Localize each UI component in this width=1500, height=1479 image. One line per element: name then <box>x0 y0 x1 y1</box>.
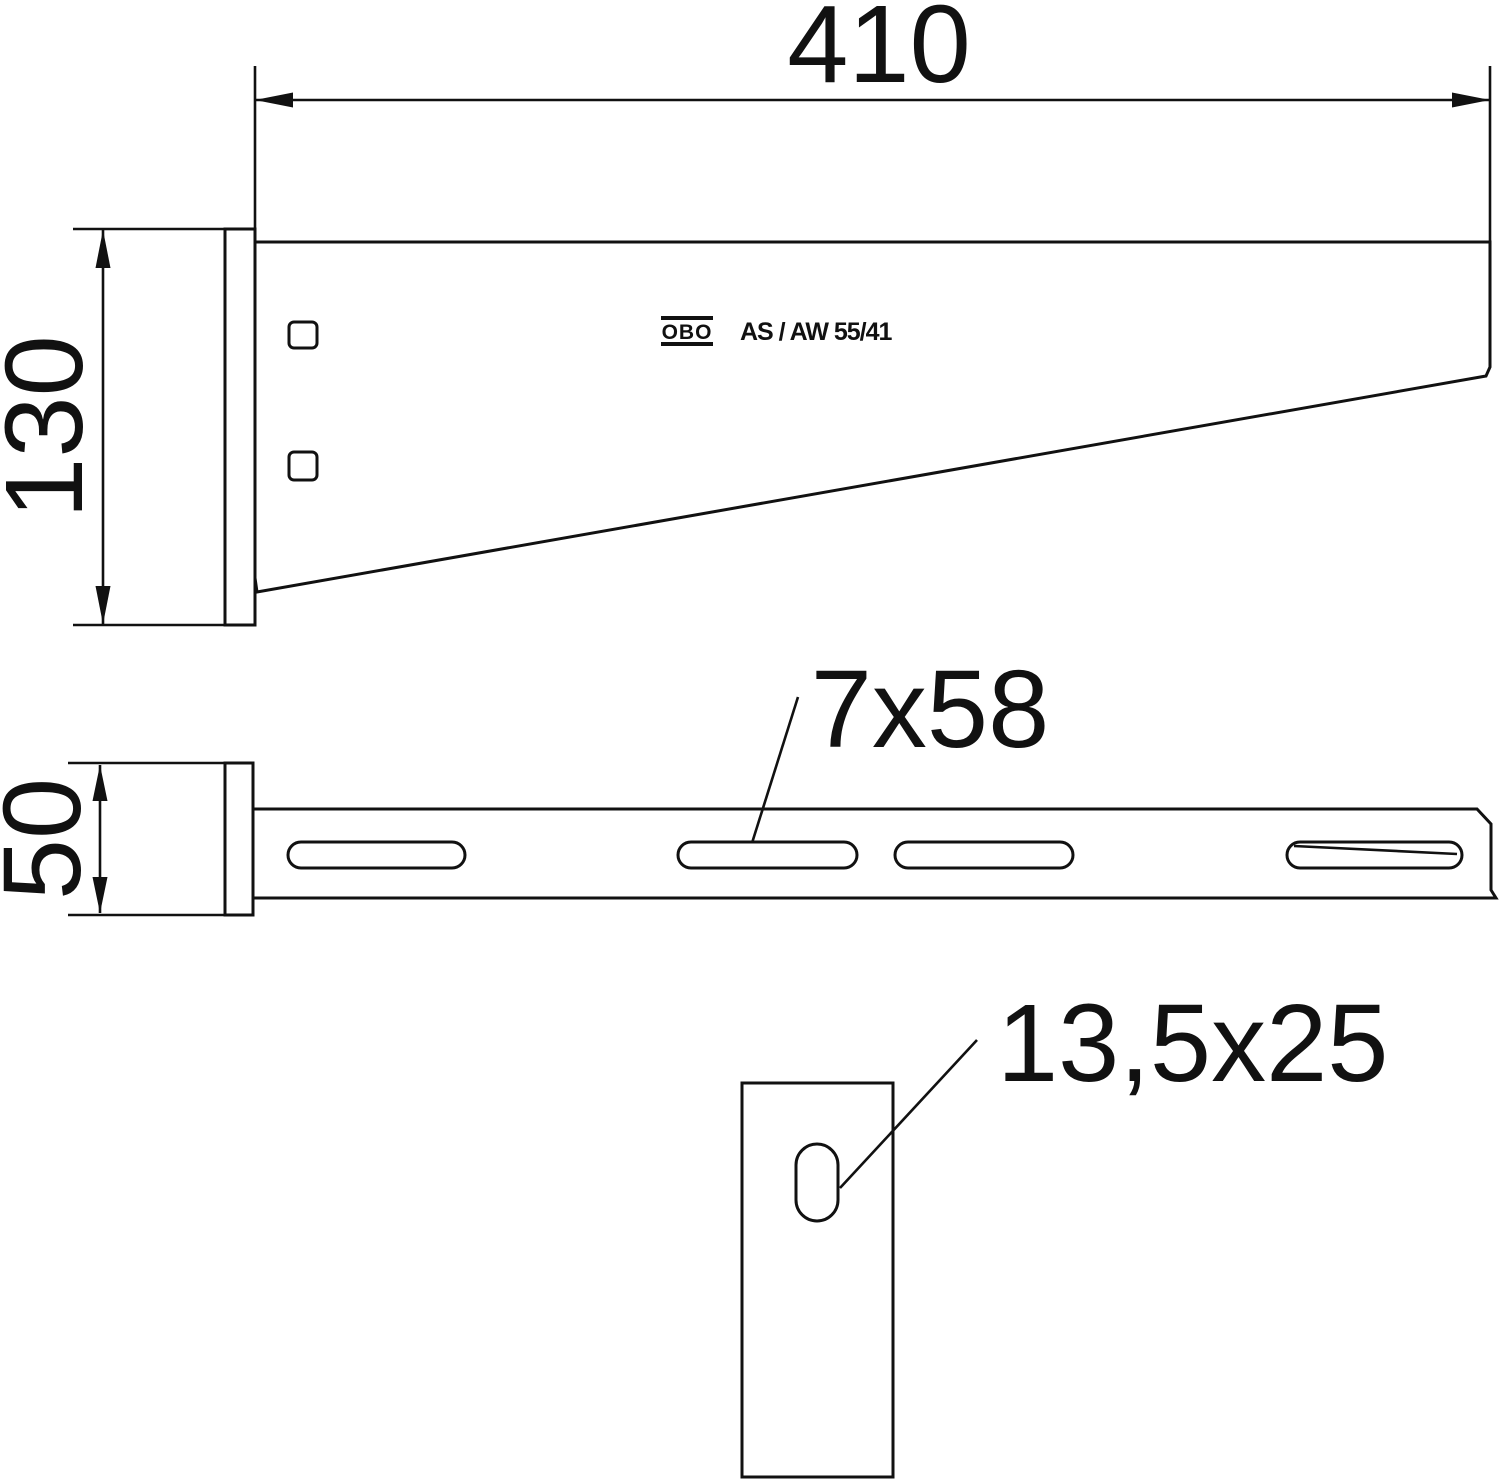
technical-drawing-canvas: OBO AS / AW 55/41 410 130 <box>0 0 1500 1479</box>
hole-dimension-label: 13,5x25 <box>997 982 1388 1105</box>
logo-text: OBO <box>662 321 713 344</box>
slot-dimension-label: 7x58 <box>811 648 1050 771</box>
width-dimension: 50 <box>0 763 253 915</box>
slot-2 <box>678 842 857 868</box>
logo-top-bar <box>661 316 713 320</box>
side-view: OBO AS / AW 55/41 410 130 <box>0 0 1490 625</box>
wall-plate-front <box>742 1083 893 1477</box>
length-arrow-left <box>255 93 293 108</box>
hole-callout: 13,5x25 <box>840 982 1388 1188</box>
plan-view: 50 7x58 <box>0 648 1496 915</box>
obo-logo: OBO <box>661 316 713 346</box>
bracket-drawing: OBO AS / AW 55/41 410 130 <box>0 0 1500 1479</box>
length-dimension: 410 <box>255 0 1490 242</box>
oblong-hole <box>796 1144 838 1221</box>
slot-3 <box>895 842 1073 868</box>
arm-profile-outline <box>255 242 1490 592</box>
wall-plate-plan <box>225 763 253 915</box>
height-arrow-bottom <box>96 586 111 624</box>
square-hole-upper <box>289 322 317 348</box>
height-arrow-top <box>96 230 111 268</box>
length-dimension-label: 410 <box>787 0 971 106</box>
square-hole-lower <box>289 452 317 480</box>
model-label: AS / AW 55/41 <box>740 318 893 346</box>
wall-plate-side <box>225 229 255 625</box>
height-dimension-label: 130 <box>0 335 106 519</box>
width-dimension-label: 50 <box>0 778 104 900</box>
front-view: 13,5x25 <box>742 982 1388 1477</box>
slot-1 <box>288 842 465 868</box>
height-dimension: 130 <box>0 229 255 625</box>
length-arrow-right <box>1452 93 1490 108</box>
